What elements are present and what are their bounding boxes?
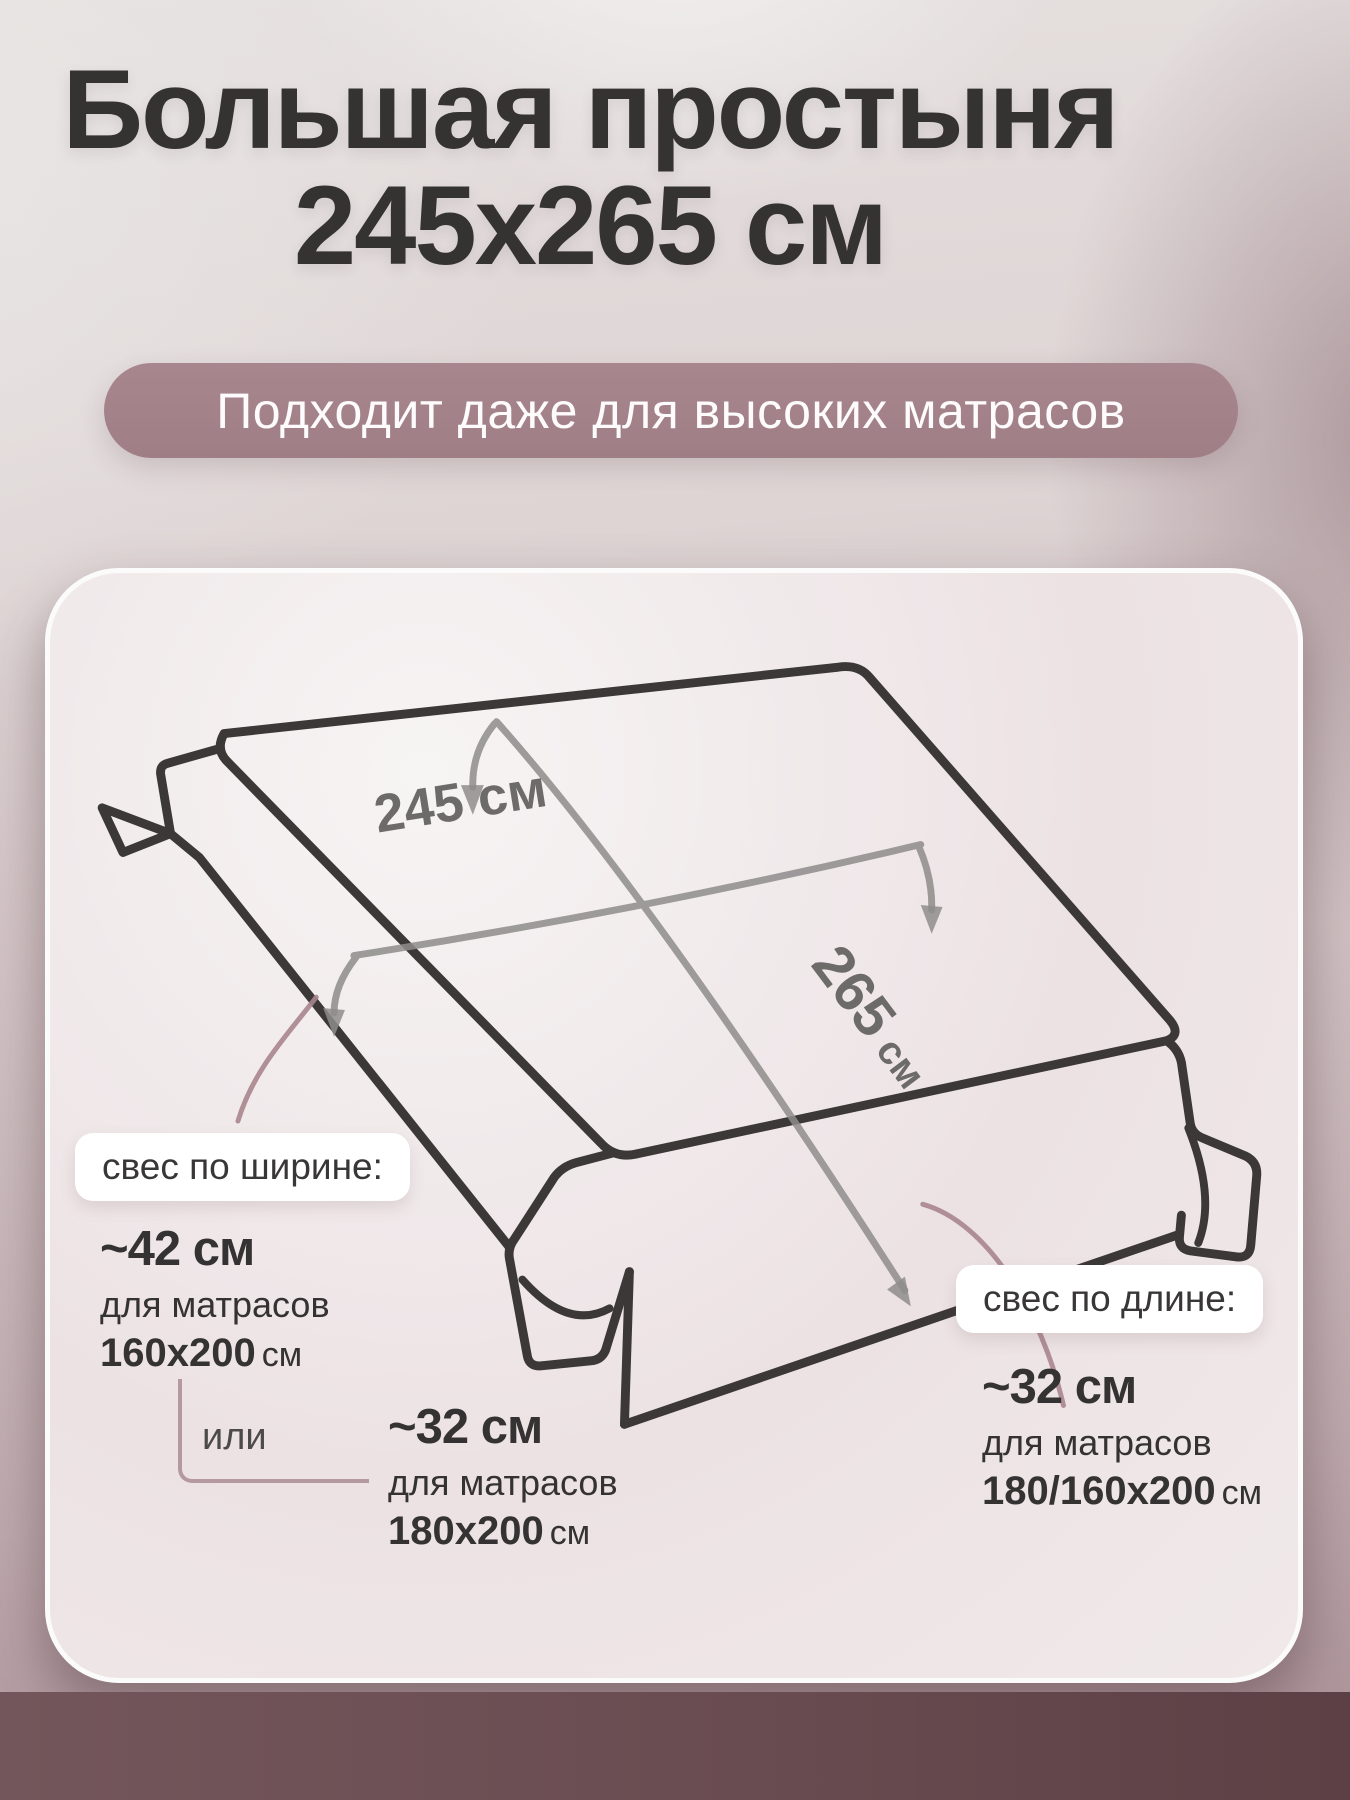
- length-dimension-label: 265см: [799, 934, 946, 1100]
- width-overhang-size-unit: см: [262, 1336, 302, 1374]
- title-line-1: Большая простыня: [0, 52, 1180, 168]
- bottom-dark-band: [0, 1692, 1350, 1800]
- width-overhang-alt-value: ~32 см: [388, 1399, 618, 1455]
- feature-badge-label: Подходит даже для высоких матрасов: [216, 382, 1125, 440]
- sheet-front-left-drape: [509, 1153, 629, 1366]
- down-arrowhead-icon: [921, 905, 943, 934]
- length-overhang-size: 180/160х200см: [982, 1469, 1262, 1514]
- length-dimension-value: 265: [799, 934, 908, 1049]
- length-overhang-size-unit: см: [1222, 1474, 1262, 1512]
- title-line-2: 245х265 см: [0, 168, 1180, 284]
- width-overhang-pill: свес по ширине:: [75, 1133, 410, 1201]
- width-dimension-label: 245 см: [370, 759, 551, 844]
- length-overhang-size-value: 180/160х200: [982, 1469, 1216, 1513]
- width-overhang-alt-size-unit: см: [550, 1514, 590, 1552]
- or-label: или: [202, 1416, 267, 1459]
- length-overhang-pill-label: свес по длине:: [983, 1278, 1236, 1319]
- width-overhang-alt-callout: ~32 см для матрасов 180х200см: [388, 1399, 618, 1554]
- length-overhang-value: ~32 см: [982, 1359, 1262, 1415]
- width-callout-connector-curve: [238, 997, 316, 1121]
- length-overhang-pill: свес по длине:: [956, 1265, 1263, 1333]
- length-dimension-unit: см: [867, 1029, 933, 1096]
- sheet-right-drape: [1167, 1041, 1257, 1257]
- diagonal-arrowhead-icon: [887, 1277, 911, 1307]
- page-title: Большая простыня 245х265 см: [0, 52, 1180, 285]
- width-overhang-alt-size: 180х200см: [388, 1509, 618, 1554]
- width-overhang-alt-note: для матрасов: [388, 1462, 618, 1504]
- infographic-page: Большая простыня 245х265 см Подходит даж…: [0, 0, 1350, 1800]
- width-overhang-note: для матрасов: [100, 1284, 330, 1326]
- diagram-card: 245 см 265см свес по ширине: ~42 см для …: [45, 568, 1303, 1683]
- length-overhang-note: для матрасов: [982, 1422, 1262, 1464]
- width-overhang-callout: ~42 см для матрасов 160х200см: [100, 1221, 330, 1376]
- width-overhang-size-value: 160х200: [100, 1331, 256, 1375]
- sheet-top-face: [220, 667, 1175, 1156]
- width-overhang-pill-label: свес по ширине:: [102, 1146, 383, 1187]
- length-overhang-callout: ~32 см для матрасов 180/160х200см: [982, 1359, 1262, 1514]
- width-right-arrow-line: [919, 847, 932, 910]
- feature-badge: Подходит даже для высоких матрасов: [104, 363, 1238, 458]
- sheet-right-drape-crease: [1188, 1128, 1205, 1243]
- width-overhang-size: 160х200см: [100, 1331, 330, 1376]
- width-left-arrow-line: [334, 958, 356, 1013]
- sheet-front-left-crease: [522, 1280, 609, 1316]
- width-overhang-alt-size-value: 180х200: [388, 1509, 544, 1553]
- sheet-left-corner-flap: [102, 748, 220, 852]
- sheet-front-left-edge: [624, 1272, 629, 1425]
- width-overhang-value: ~42 см: [100, 1221, 330, 1277]
